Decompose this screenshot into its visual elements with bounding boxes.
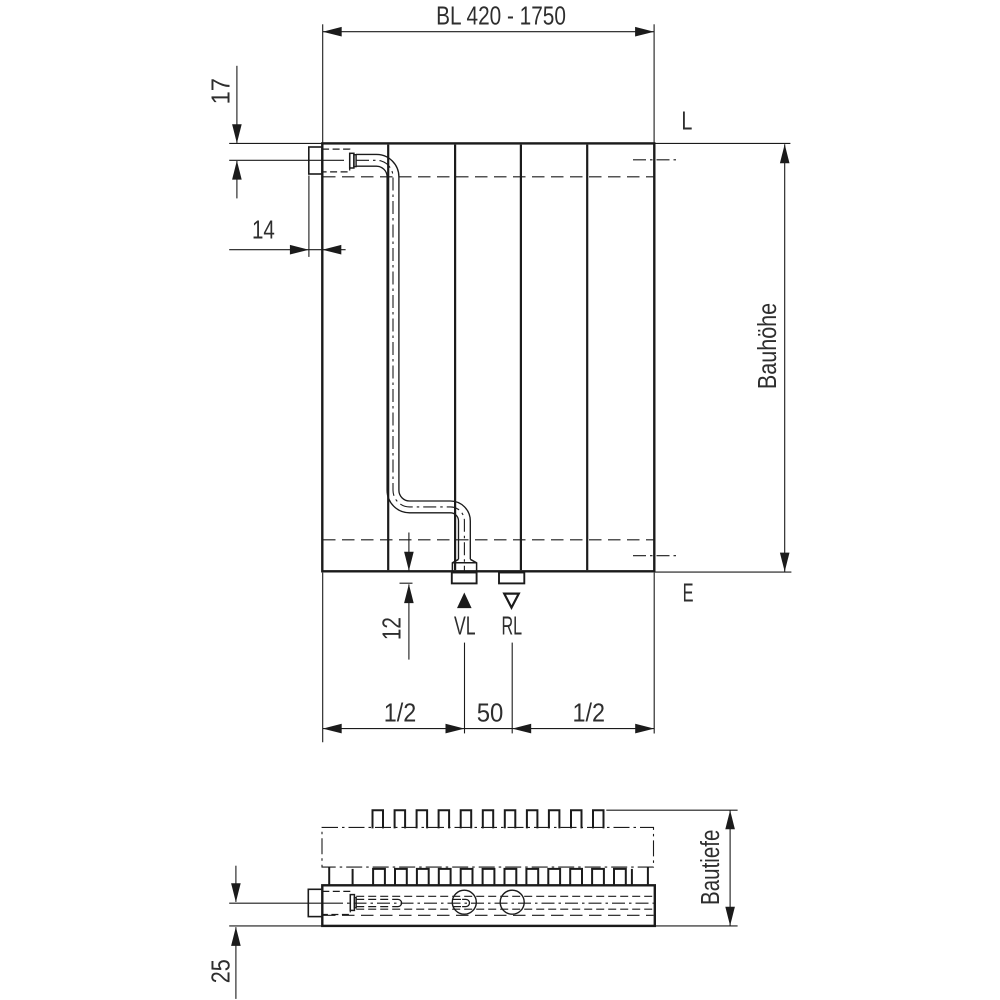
svg-text:1/2: 1/2 [572,699,605,727]
svg-text:RL: RL [501,610,522,640]
svg-text:Bautiefe: Bautiefe [696,830,725,905]
svg-text:E: E [683,578,694,608]
svg-text:L: L [681,106,692,135]
svg-text:17: 17 [208,78,236,104]
svg-text:12: 12 [377,617,406,640]
svg-text:50: 50 [477,698,504,727]
svg-text:BL 420 - 1750: BL 420 - 1750 [436,1,566,30]
svg-text:Bauhöhe: Bauhöhe [753,303,782,389]
svg-text:VL: VL [454,611,476,640]
svg-text:14: 14 [252,215,275,244]
svg-text:25: 25 [207,959,236,983]
svg-text:1/2: 1/2 [384,699,417,727]
